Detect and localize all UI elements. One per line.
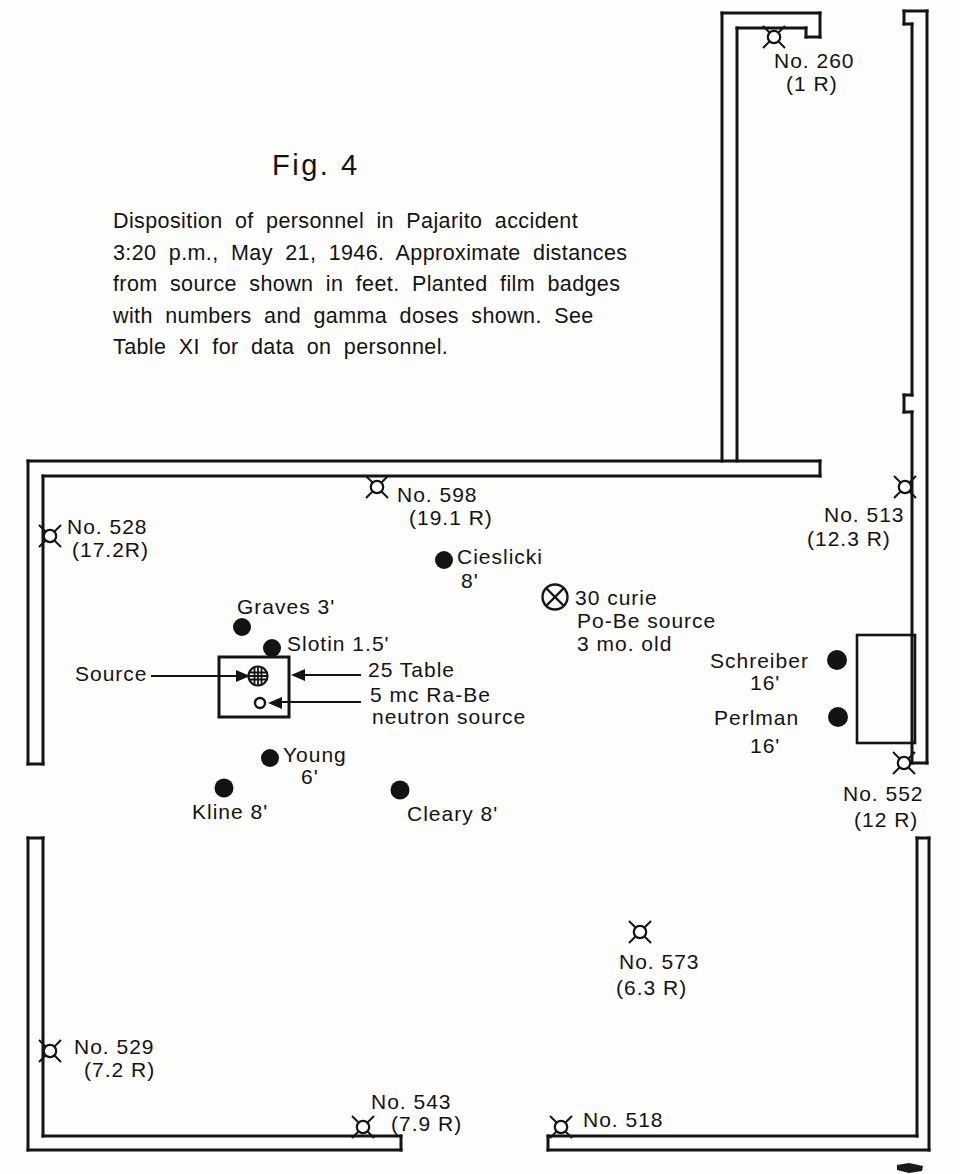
caption-line-5: Table XI for data on personnel.: [113, 335, 628, 367]
cieslicki-dot: [435, 551, 453, 569]
caption-line-1: Disposition of personnel in Pajarito acc…: [113, 209, 628, 241]
schreiber-distance: 16': [750, 671, 780, 694]
slotin-label: Slotin 1.5': [287, 632, 390, 655]
neutron-source-arrow: [268, 697, 361, 709]
badge-260-number: No. 260: [774, 49, 855, 72]
badge-598-number: No. 598: [397, 483, 478, 506]
badge-513-number: No. 513: [824, 503, 905, 526]
pobe-label-line3: 3 mo. old: [577, 632, 672, 655]
perlman-name: Perlman: [714, 706, 799, 729]
schreiber-name: Schreiber: [710, 649, 809, 672]
neutron-source-label-line2: neutron source: [372, 705, 526, 728]
equipment-bench: [857, 635, 915, 743]
cleary-dot: [391, 781, 410, 800]
critical-assembly-table: [219, 657, 289, 717]
badge-598-dose: (19.1 R): [409, 506, 493, 529]
schreiber-dot: [827, 650, 847, 670]
floor-plan-drawing: [0, 0, 960, 1174]
graves-dot: [233, 618, 251, 636]
cieslicki-distance: 8': [461, 569, 479, 592]
young-distance: 6': [301, 765, 319, 788]
badge-598-symbol: [366, 476, 388, 498]
perlman-distance: 16': [750, 734, 780, 757]
source-arrow: [151, 670, 250, 682]
perlman-dot: [828, 707, 848, 727]
po-be-source-symbol: [543, 585, 568, 610]
ra-be-source-symbol: [255, 698, 265, 708]
figure-page: Fig. 4 Disposition of personnel in Pajar…: [0, 0, 960, 1174]
badge-543-number: No. 543: [371, 1090, 452, 1113]
young-name: Young: [283, 743, 347, 766]
badge-529-number: No. 529: [74, 1035, 155, 1058]
badge-573-dose: (6.3 R): [616, 976, 687, 999]
core-source-symbol: [247, 665, 269, 687]
young-dot: [261, 749, 279, 767]
figure-caption: Disposition of personnel in Pajarito acc…: [113, 209, 628, 367]
kline-dot: [215, 779, 234, 798]
badge-552-number: No. 552: [843, 782, 924, 805]
badge-543-dose: (7.9 R): [391, 1112, 462, 1135]
badge-573-number: No. 573: [619, 950, 700, 973]
badge-260-dose: (1 R): [786, 72, 838, 95]
cleary-label: Cleary 8': [407, 802, 498, 825]
cieslicki-name: Cieslicki: [457, 545, 543, 568]
table-arrow: [291, 669, 361, 681]
badge-518-number: No. 518: [583, 1108, 664, 1131]
table-label: 25 Table: [368, 658, 455, 681]
pobe-label-line2: Po-Be source: [577, 609, 716, 632]
badge-552-dose: (12 R): [854, 808, 918, 831]
badge-528-dose: (17.2R): [72, 538, 149, 561]
scan-artifact: [897, 1163, 923, 1173]
badge-513-dose: (12.3 R): [807, 527, 891, 550]
badge-528-number: No. 528: [67, 515, 148, 538]
pobe-label-line1: 30 curie: [575, 586, 658, 609]
neutron-source-label-line1: 5 mc Ra-Be: [370, 683, 491, 706]
badge-573-symbol: [629, 921, 651, 943]
caption-line-3: from source shown in feet. Planted film …: [113, 272, 628, 304]
caption-line-4: with numbers and gamma doses shown. See: [113, 304, 628, 336]
graves-label: Graves 3': [237, 595, 335, 618]
caption-line-2: 3:20 p.m., May 21, 1946. Approximate dis…: [113, 241, 628, 273]
kline-label: Kline 8': [192, 800, 268, 823]
badge-529-dose: (7.2 R): [84, 1058, 155, 1081]
slotin-dot: [263, 639, 281, 657]
figure-title: Fig. 4: [272, 150, 360, 182]
source-label: Source: [75, 662, 148, 685]
